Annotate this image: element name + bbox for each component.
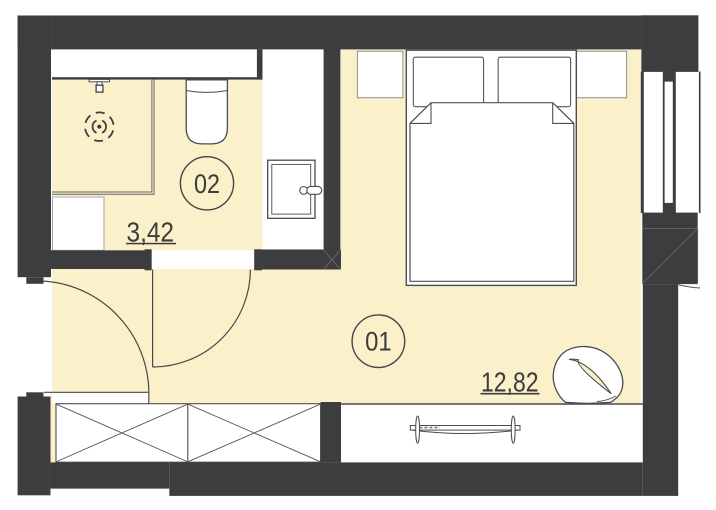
svg-text:12,82: 12,82 <box>481 367 539 398</box>
svg-text:01: 01 <box>365 327 392 357</box>
svg-text:02: 02 <box>194 169 220 199</box>
